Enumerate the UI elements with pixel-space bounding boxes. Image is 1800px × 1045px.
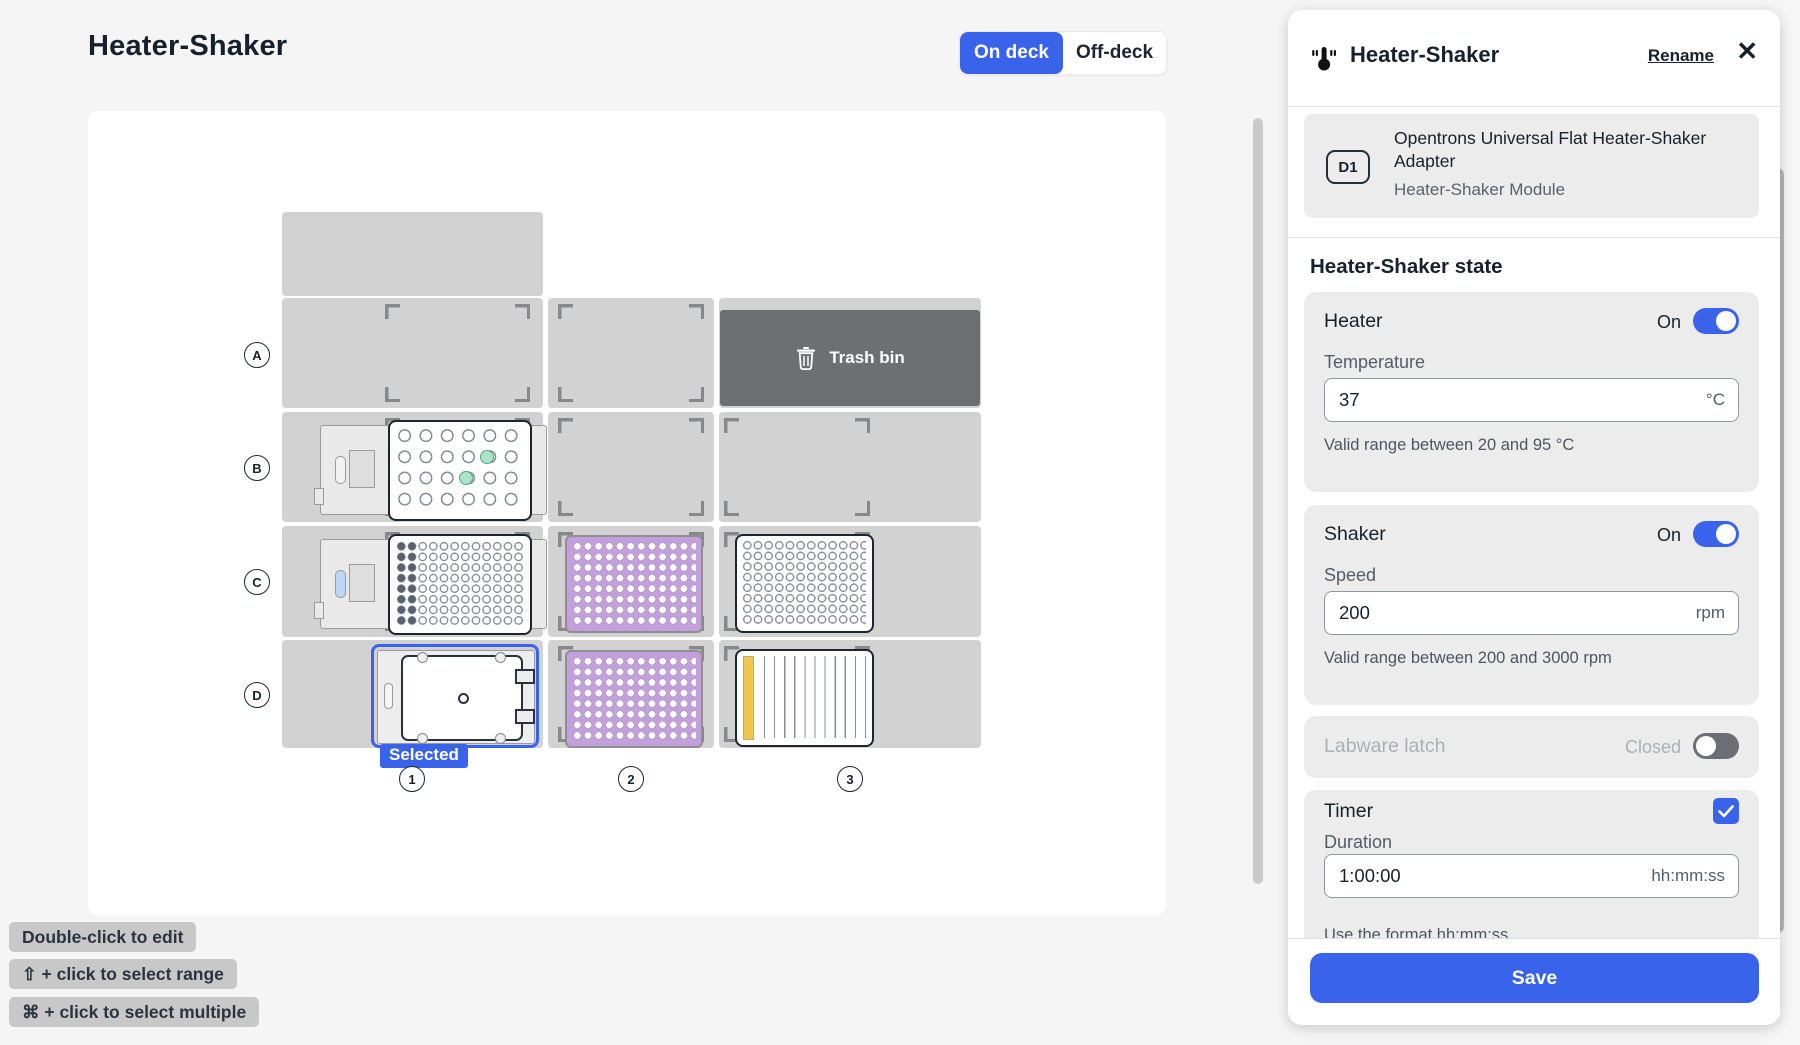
hint-shift-click: ⇧ + click to select range <box>9 959 237 989</box>
panel-header: Heater-Shaker Rename ✕ <box>1288 10 1780 107</box>
speed-label: Speed <box>1324 565 1376 586</box>
trash-bin[interactable]: Trash bin <box>720 310 980 406</box>
panel-body: D1 Opentrons Universal Flat Heater-Shake… <box>1288 107 1780 938</box>
heater-shaker-settings-panel: Heater-Shaker Rename ✕ D1 Opentrons Univ… <box>1288 10 1780 1025</box>
labware-latch-label: Labware latch <box>1324 735 1445 758</box>
labware-purple-plate-d2[interactable] <box>565 650 703 748</box>
row-label-d: D <box>244 682 270 708</box>
filled-well-green <box>480 450 494 464</box>
heater-label: Heater <box>1324 310 1383 333</box>
temperature-range-caption: Valid range between 20 and 95 °C <box>1324 436 1574 455</box>
labware-24-well-plate-b1[interactable] <box>388 420 532 521</box>
labware-96-well-plate-c1[interactable] <box>388 534 532 635</box>
state-heading: Heater-Shaker state <box>1310 255 1503 279</box>
module-light-c1 <box>335 570 346 598</box>
labware-name: Opentrons Universal Flat Heater-Shaker A… <box>1394 127 1744 173</box>
labware-latch-card: Labware latch Closed <box>1304 716 1759 778</box>
heater-card: Heater On Temperature °C Valid range bet… <box>1304 292 1759 492</box>
column-label-1: 1 <box>399 766 425 792</box>
page-title: Heater-Shaker <box>88 30 287 63</box>
slot-footprint-b3 <box>724 418 870 516</box>
duration-format-caption: Use the format hh:mm:ss <box>1324 926 1508 938</box>
slot-footprint-a1 <box>385 304 530 402</box>
section-divider <box>1288 237 1780 238</box>
adapter-screw <box>495 652 506 663</box>
filled-well-columns <box>396 541 418 626</box>
heater-status: On <box>1657 312 1681 333</box>
module-name: Heater-Shaker Module <box>1394 180 1565 200</box>
module-light-d1 <box>384 683 393 709</box>
latch-clip <box>515 709 535 724</box>
module-summary-card: D1 Opentrons Universal Flat Heater-Shake… <box>1304 114 1759 218</box>
close-icon[interactable]: ✕ <box>1736 38 1758 64</box>
slot-badge-d1: D1 <box>1326 150 1370 184</box>
trash-icon <box>795 346 817 370</box>
well-grid-96 <box>572 656 696 740</box>
channel-grid <box>755 656 866 738</box>
slot-footprint-b2 <box>558 418 704 516</box>
temperature-unit: °C <box>1706 390 1725 410</box>
flat-adapter-plate <box>401 655 523 741</box>
speed-input[interactable] <box>1324 591 1739 635</box>
page-scrollbar[interactable] <box>1253 118 1263 884</box>
shaker-card: Shaker On Speed rpm Valid range between … <box>1304 505 1759 705</box>
speed-unit: rpm <box>1696 603 1725 623</box>
latch-clip <box>515 669 535 684</box>
selected-heater-shaker-d1[interactable] <box>371 644 539 748</box>
panel-title: Heater-Shaker <box>1350 42 1499 68</box>
shaker-toggle[interactable] <box>1693 521 1739 547</box>
heater-toggle[interactable] <box>1693 308 1739 334</box>
shaker-label: Shaker <box>1324 523 1386 546</box>
hint-double-click: Double-click to edit <box>9 922 196 952</box>
filled-channel-yellow <box>743 656 754 740</box>
well-grid-96 <box>572 541 696 625</box>
heater-shaker-icon <box>1310 44 1338 79</box>
shaker-status: On <box>1657 525 1681 546</box>
module-light-b1 <box>335 456 346 484</box>
hint-cmd-click: ⌘ + click to select multiple <box>9 997 259 1027</box>
deck-view-toggle: On deck Off-deck <box>959 31 1167 75</box>
column-label-3: 3 <box>837 766 863 792</box>
duration-label: Duration <box>1324 832 1392 853</box>
latch-status: Closed <box>1625 737 1681 758</box>
slot-footprint-a2 <box>558 304 704 402</box>
staging-slot[interactable] <box>282 212 543 296</box>
temperature-input[interactable] <box>1324 378 1739 422</box>
row-label-a: A <box>244 342 270 368</box>
off-deck-tab[interactable]: Off-deck <box>1063 32 1166 74</box>
module-port-b1 <box>349 450 375 488</box>
module-port-c1 <box>349 564 375 602</box>
duration-unit: hh:mm:ss <box>1651 866 1725 886</box>
selected-badge: Selected <box>380 744 468 768</box>
row-label-b: B <box>244 455 270 481</box>
module-tab-b1 <box>314 488 324 505</box>
deck-map: A B C D Trash bin <box>88 111 1166 915</box>
timer-label: Timer <box>1324 800 1373 823</box>
panel-footer: Save <box>1288 938 1780 1025</box>
well-grid-24 <box>394 425 522 510</box>
module-tab-c1 <box>314 602 324 619</box>
save-button[interactable]: Save <box>1310 953 1759 1003</box>
check-icon <box>1718 805 1734 818</box>
rename-link[interactable]: Rename <box>1648 46 1714 66</box>
labware-12-channel-reservoir-d3[interactable] <box>735 649 874 747</box>
adapter-screw <box>417 652 428 663</box>
speed-range-caption: Valid range between 200 and 3000 rpm <box>1324 649 1612 668</box>
timer-checkbox[interactable] <box>1713 798 1739 824</box>
temperature-label: Temperature <box>1324 352 1425 373</box>
on-deck-tab[interactable]: On deck <box>960 32 1063 74</box>
column-label-2: 2 <box>618 766 644 792</box>
toggle-knob <box>1716 524 1736 544</box>
trash-bin-label: Trash bin <box>829 348 905 368</box>
toggle-knob <box>1696 736 1716 756</box>
latch-toggle <box>1693 733 1739 759</box>
filled-well-green <box>459 471 473 485</box>
timer-card: Timer Duration hh:mm:ss Use the format h… <box>1304 790 1759 938</box>
adapter-screw <box>495 733 506 744</box>
well-grid-96 <box>742 540 866 624</box>
adapter-screw <box>417 733 428 744</box>
row-label-c: C <box>244 569 270 595</box>
toggle-knob <box>1716 311 1736 331</box>
labware-96-well-plate-c3[interactable] <box>735 534 874 633</box>
labware-purple-plate-c2[interactable] <box>565 535 703 633</box>
adapter-center-hole <box>458 693 469 704</box>
